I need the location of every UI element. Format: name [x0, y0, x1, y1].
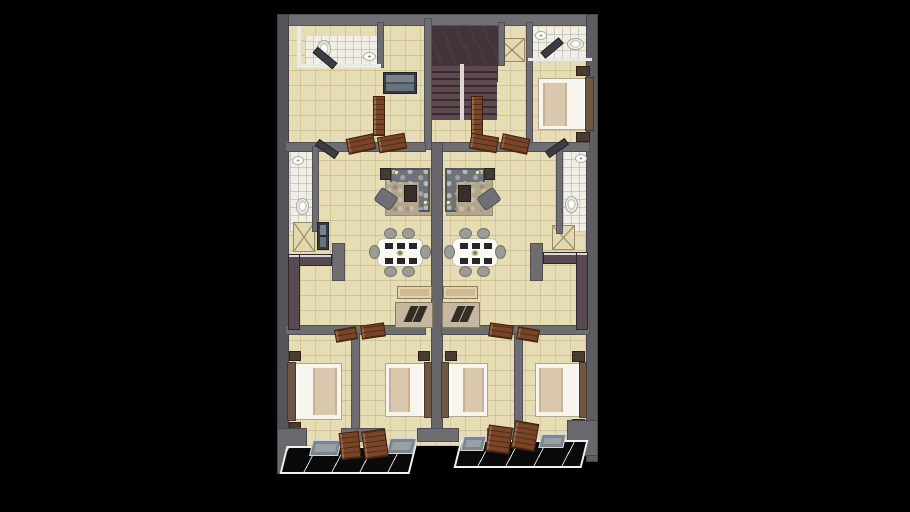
plant-right-1 [475, 170, 481, 176]
bed-bottom-c [443, 363, 488, 417]
dining-chair [384, 266, 397, 277]
wall-stair-right [498, 22, 505, 66]
nightstand [445, 351, 457, 361]
sofa-low-left [395, 302, 433, 328]
kitchen-counter-left-side [288, 254, 300, 330]
sink [292, 156, 304, 165]
toilet [296, 198, 309, 215]
dining-chair [420, 245, 431, 259]
dining-chair [402, 266, 415, 277]
floor-plan [277, 14, 598, 480]
plant-left-2 [423, 200, 429, 206]
sink [575, 154, 587, 163]
entry-mat [386, 438, 417, 454]
wall-cap-white-bath-tl [301, 64, 381, 68]
wall-bedroom-sep-ab [351, 333, 360, 436]
door-leaf-bedroom-top-right [471, 96, 483, 136]
entry-door-left-2 [361, 428, 389, 459]
nightstand [572, 351, 585, 362]
wall-kitchen-stub-left [332, 243, 345, 281]
wall-cap-white-top-left [297, 26, 301, 68]
dining-chair [459, 266, 472, 277]
dining-chair [477, 266, 490, 277]
toilet [567, 38, 584, 50]
door-leaf-bedroom-top-left [373, 96, 385, 136]
fridge-cabinet-left [317, 222, 329, 250]
nightstand [418, 351, 430, 361]
plant-left-1 [394, 170, 400, 176]
tv-console-left [397, 286, 432, 299]
hall-cabinet-stair [383, 72, 417, 94]
coffee-table-left [404, 185, 417, 202]
dining-chair [402, 228, 415, 239]
wall-kitchen-stub-right [530, 243, 543, 281]
entry-mat [460, 436, 487, 451]
dining-table-left [377, 238, 423, 267]
stair-stringer [460, 64, 464, 122]
entry-door-right-2 [511, 420, 539, 452]
nightstand [576, 132, 590, 142]
wall-bath-top-left-east [377, 22, 384, 68]
dining-chair [495, 245, 506, 259]
dining-table-right [452, 238, 498, 267]
wall-top [277, 14, 598, 26]
sofa-low-right [442, 302, 480, 328]
entry-door-left-1 [339, 431, 362, 460]
wall-stair-left [424, 18, 432, 150]
render-canvas [0, 0, 910, 512]
wall-cap-white-bath-tr [528, 58, 592, 61]
tv-console-right [443, 286, 478, 299]
entry-mat [309, 440, 342, 456]
wall-bath-mid-left-east [312, 146, 319, 232]
nightstand [576, 66, 590, 76]
entry-door-right-1 [485, 424, 513, 454]
bed-bottom-d [535, 363, 585, 417]
dining-chair [369, 245, 380, 259]
wall-bedroom-top-right-west [526, 22, 533, 144]
bed-bottom-a [289, 363, 342, 420]
bed-bottom-b [385, 363, 430, 417]
dining-chair [384, 228, 397, 239]
bed-top-right [538, 78, 592, 130]
toilet [565, 196, 578, 213]
side-table-left [380, 168, 391, 180]
dining-chair [459, 228, 472, 239]
dining-chair [444, 245, 455, 259]
wall-bath-mid-right-west [556, 144, 563, 234]
coffee-table-right [458, 185, 471, 202]
wall-bottom-seg-3 [417, 428, 459, 442]
sink [535, 31, 547, 40]
kitchen-counter-right-side [576, 252, 588, 330]
entry-mat [538, 434, 566, 448]
plant-right-2 [446, 200, 452, 206]
side-table-right [484, 168, 495, 180]
sink [363, 52, 376, 61]
dining-chair [477, 228, 490, 239]
nightstand [289, 351, 301, 361]
